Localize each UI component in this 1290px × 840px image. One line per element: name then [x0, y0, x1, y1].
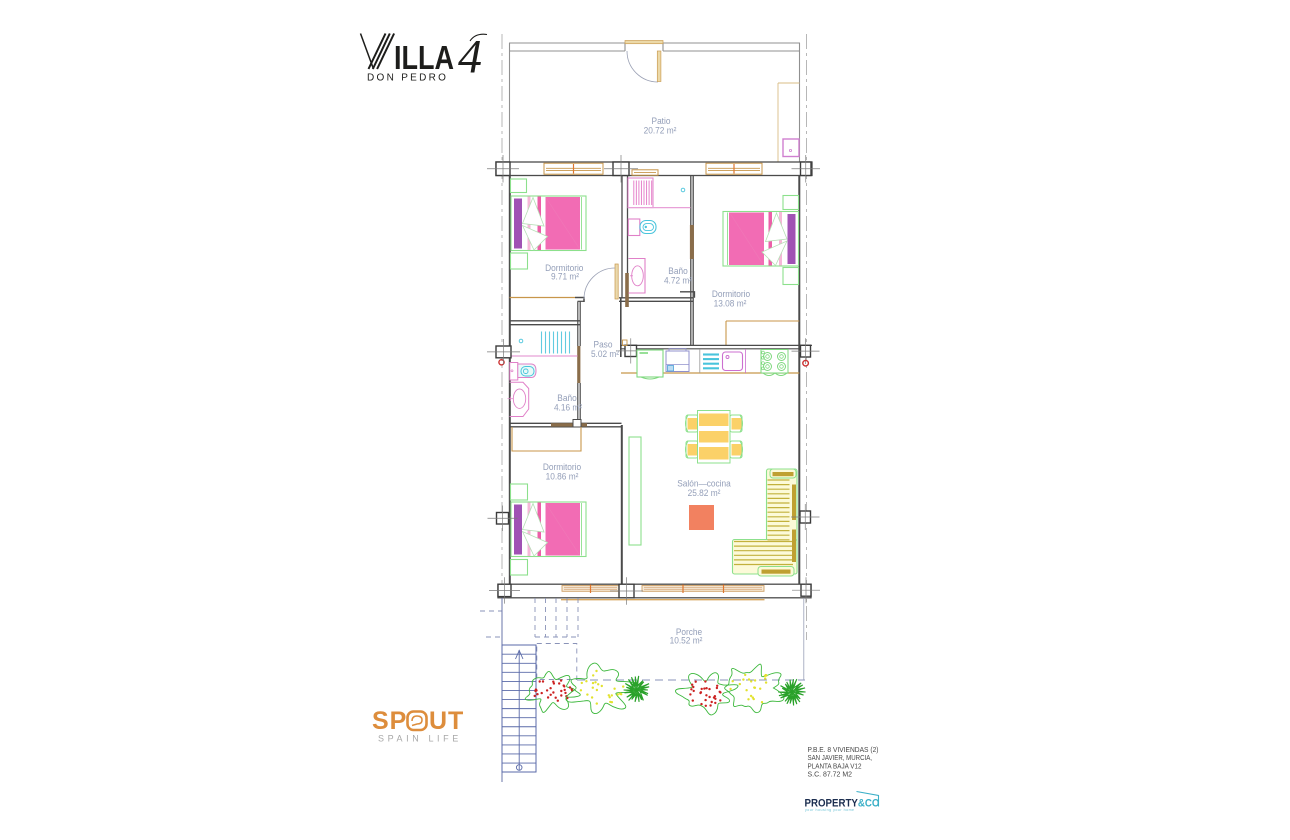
- svg-text:DON PEDRO: DON PEDRO: [367, 73, 448, 84]
- svg-text:10.86 m²: 10.86 m²: [546, 471, 579, 482]
- svg-text:your housing your home: your housing your home: [805, 808, 855, 812]
- svg-text:4.72 m²: 4.72 m²: [664, 275, 692, 286]
- svg-text:25.82 m²: 25.82 m²: [688, 487, 721, 498]
- svg-text:20.72 m²: 20.72 m²: [644, 124, 677, 135]
- svg-text:UT: UT: [429, 707, 464, 735]
- svg-text:S.C. 87.72 M2: S.C. 87.72 M2: [808, 769, 853, 778]
- svg-text:4: 4: [458, 31, 482, 84]
- svg-text:SP: SP: [372, 707, 407, 735]
- svg-text:SPAIN LIFE: SPAIN LIFE: [378, 734, 462, 744]
- svg-text:ILLA: ILLA: [394, 39, 454, 76]
- svg-text:9.71 m²: 9.71 m²: [551, 270, 579, 281]
- svg-text:10.52 m²: 10.52 m²: [670, 635, 703, 646]
- svg-text:4.16 m²: 4.16 m²: [554, 401, 582, 412]
- svg-text:5.02 m²: 5.02 m²: [591, 348, 619, 359]
- svg-text:13.08 m²: 13.08 m²: [714, 297, 747, 308]
